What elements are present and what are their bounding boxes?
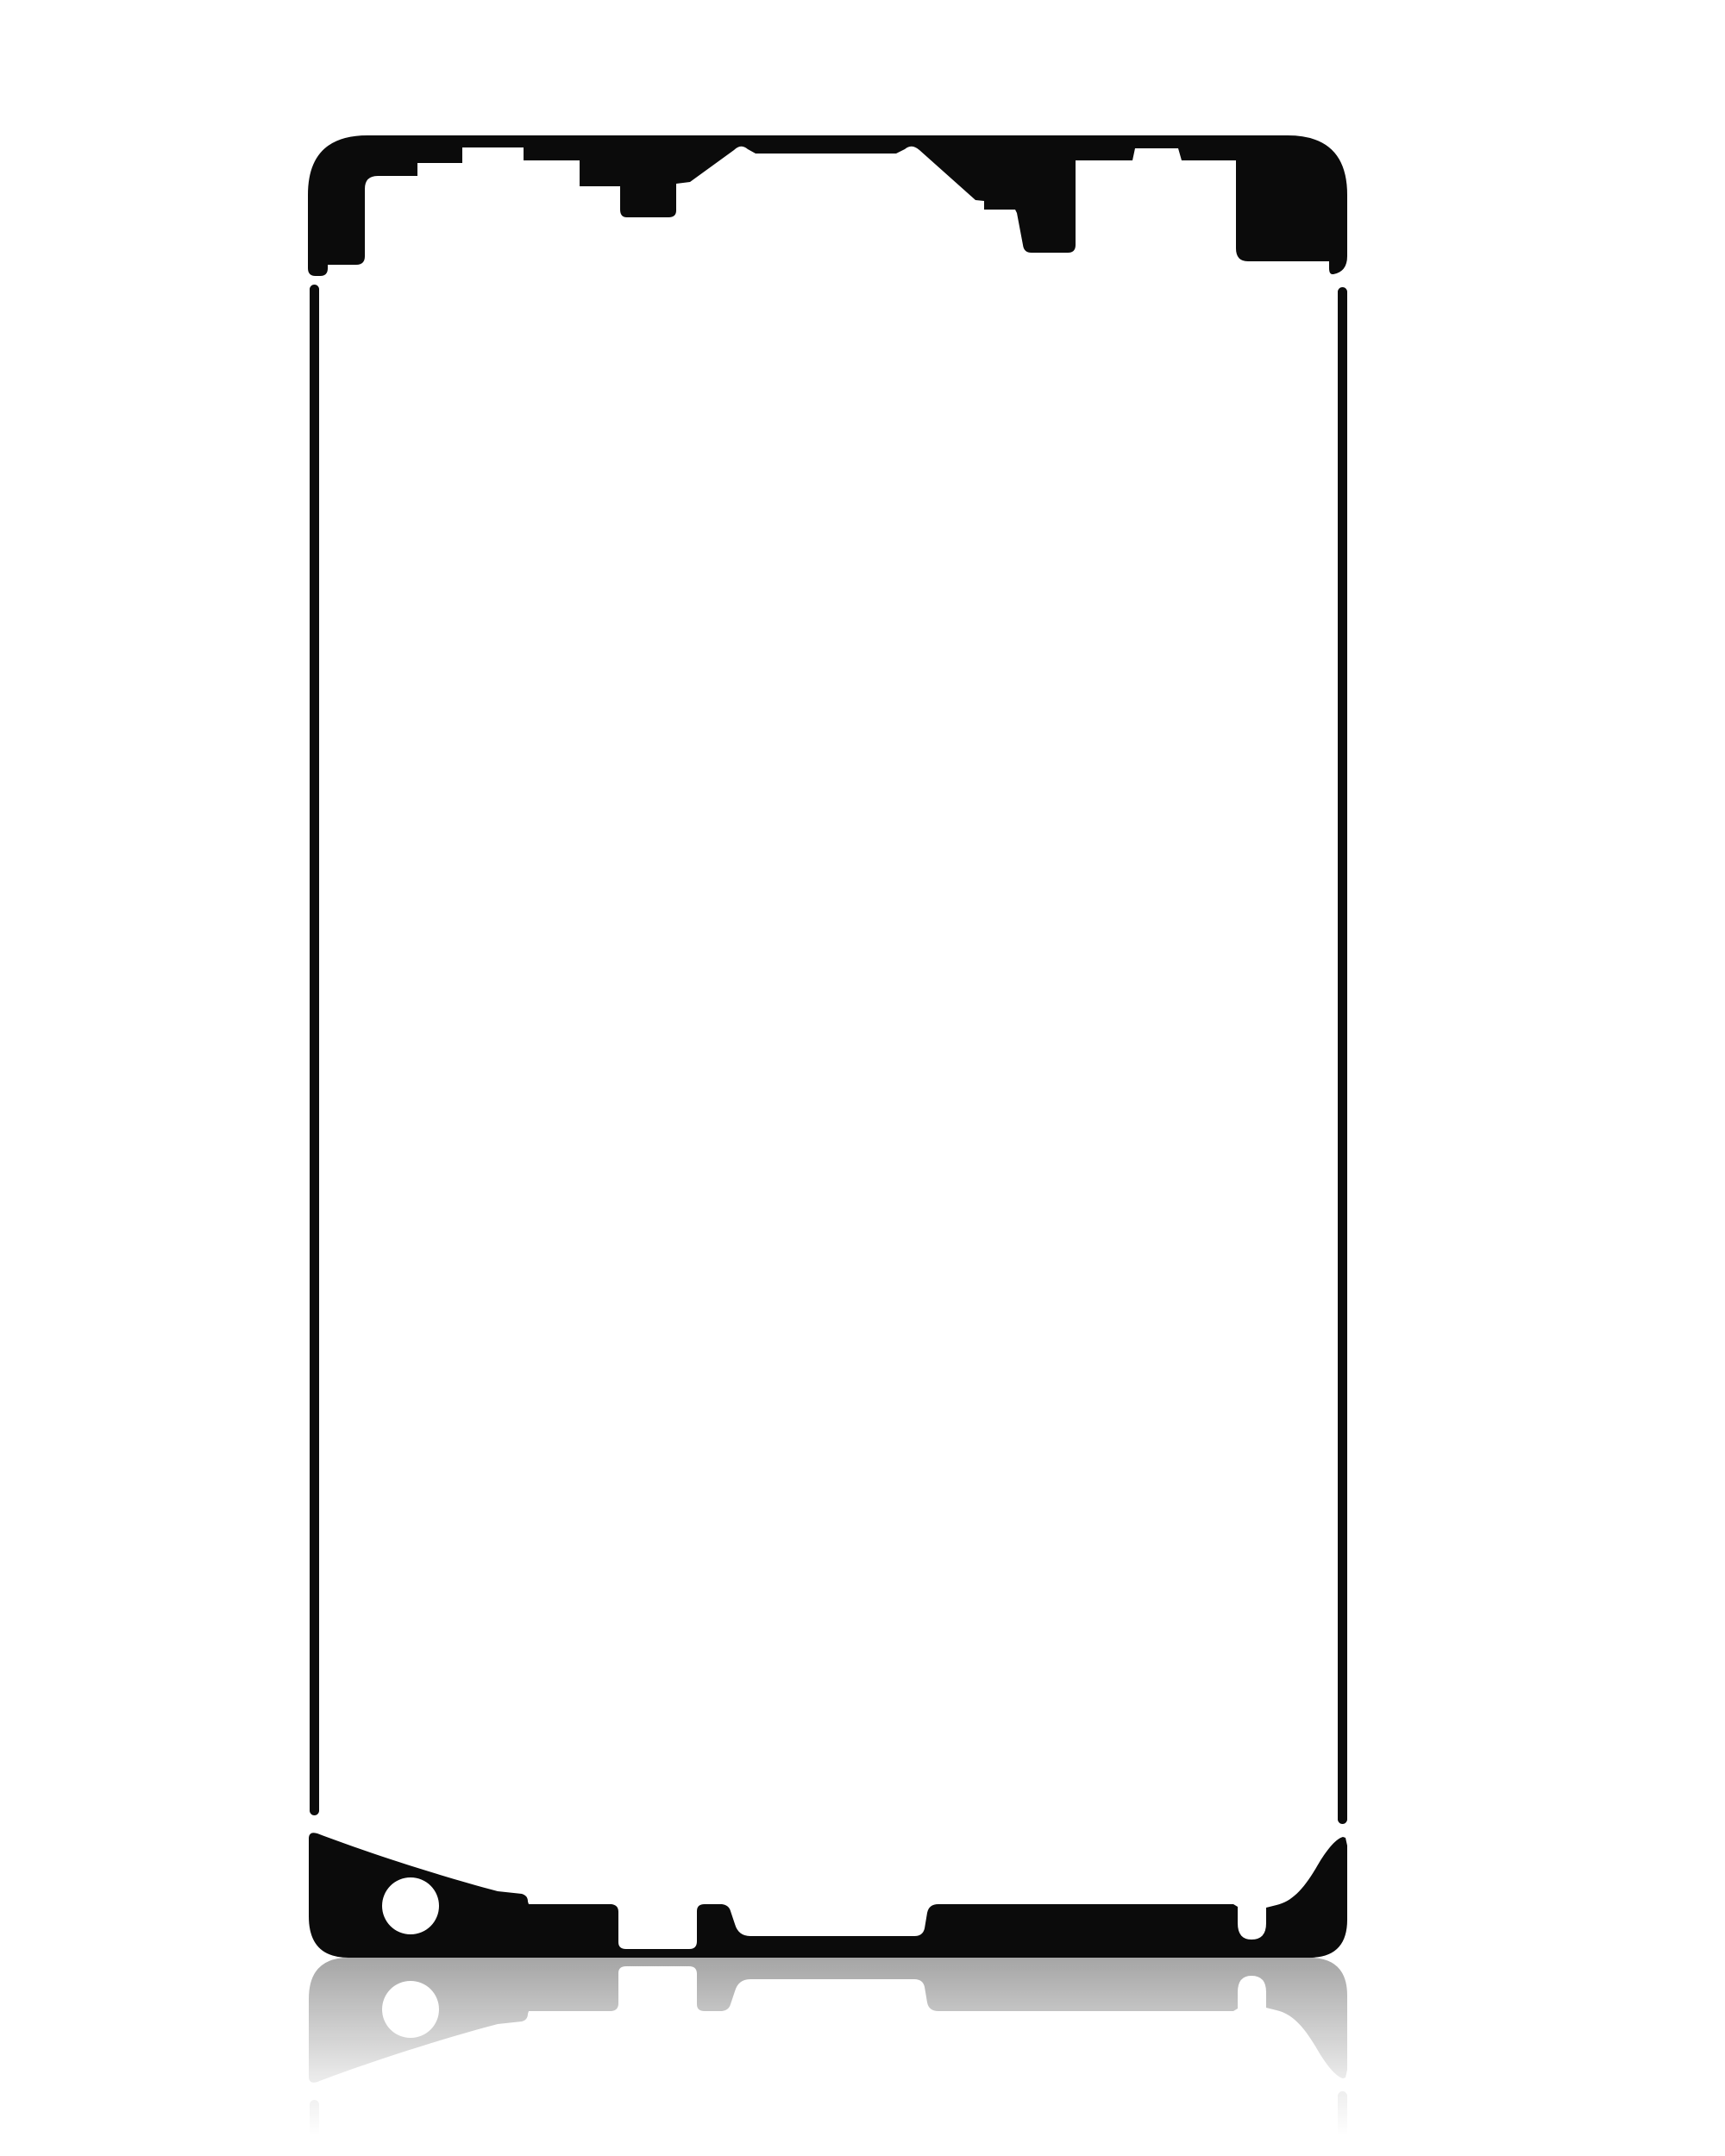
adhesive-frame-photo: [0, 0, 1725, 2156]
reflected-right-rail: [1338, 2091, 1347, 2156]
reflected-left-rail: [310, 2100, 319, 2156]
product-photo-stage: Product photo of a pre-cut black adhesiv…: [0, 0, 1725, 2156]
right-adhesive-rail: [1338, 287, 1347, 1824]
left-adhesive-rail: [310, 285, 319, 1815]
white-backdrop: [0, 0, 1725, 2156]
